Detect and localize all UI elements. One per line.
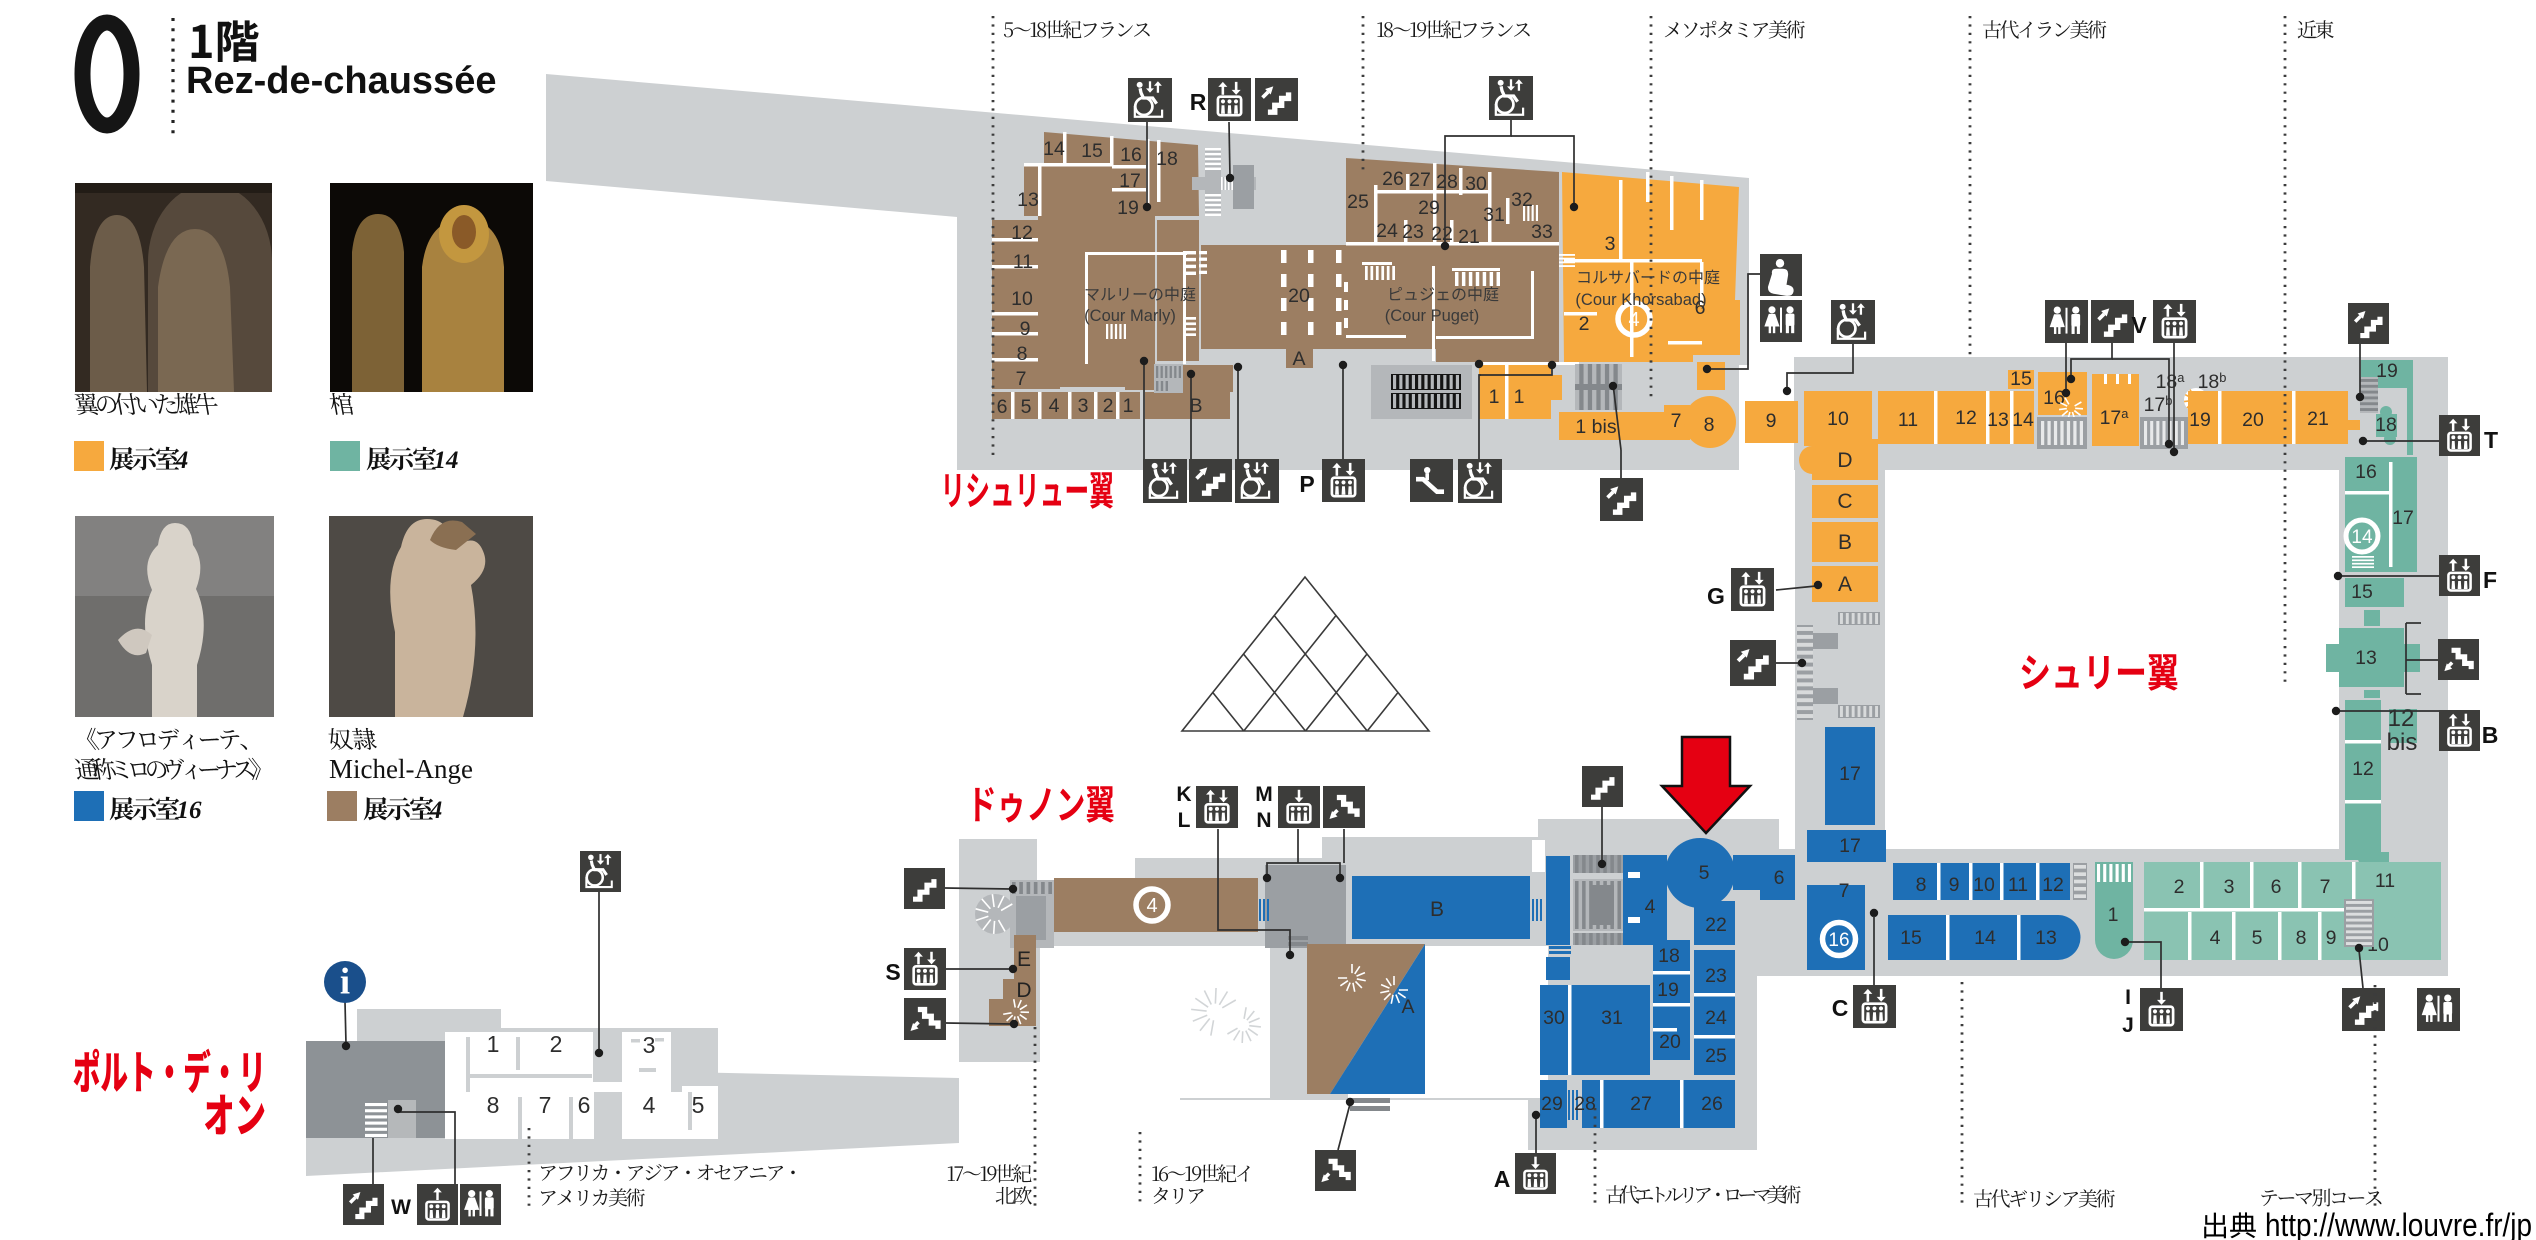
svg-text:27: 27 (1630, 1093, 1652, 1115)
svg-text:6: 6 (1774, 867, 1785, 889)
svg-text:Rez-de-chaussée: Rez-de-chaussée (186, 60, 496, 102)
svg-text:8: 8 (487, 1092, 500, 1118)
svg-text:2: 2 (2174, 876, 2185, 898)
svg-text:17: 17 (1119, 170, 1141, 192)
svg-text:15: 15 (1081, 140, 1103, 162)
svg-text:32: 32 (1511, 189, 1533, 211)
svg-text:1: 1 (1123, 395, 1134, 417)
svg-text:16: 16 (2043, 387, 2065, 409)
svg-text:http://www.louvre.fr/jp: http://www.louvre.fr/jp (2265, 1207, 2532, 1240)
svg-text:3: 3 (1605, 233, 1616, 255)
svg-text:18: 18 (1658, 945, 1680, 967)
svg-text:20: 20 (1288, 285, 1310, 307)
svg-text:7: 7 (2320, 876, 2331, 898)
svg-text:J: J (2122, 1014, 2134, 1037)
svg-text:4: 4 (1049, 395, 1060, 417)
svg-text:S: S (885, 959, 900, 985)
svg-text:11: 11 (2375, 870, 2395, 892)
svg-text:31: 31 (1601, 1007, 1623, 1029)
svg-text:14: 14 (1043, 138, 1065, 160)
svg-text:D: D (1016, 979, 1031, 1002)
svg-text:P: P (1299, 471, 1314, 497)
svg-text:25: 25 (1347, 191, 1369, 213)
svg-text:27: 27 (1409, 169, 1431, 191)
svg-text:14: 14 (2351, 527, 2373, 548)
svg-text:1 bis: 1 bis (1575, 416, 1616, 438)
svg-text:4: 4 (175, 447, 189, 474)
svg-text:N: N (1256, 809, 1271, 832)
svg-text:2: 2 (550, 1031, 563, 1057)
svg-text:12: 12 (2388, 705, 2415, 732)
svg-text:22: 22 (1705, 914, 1727, 936)
svg-text:19: 19 (1117, 197, 1139, 219)
svg-text:B: B (1430, 898, 1444, 921)
svg-text:5: 5 (692, 1092, 705, 1118)
svg-text:7: 7 (1839, 880, 1850, 902)
svg-text:12: 12 (2352, 758, 2374, 780)
svg-text:23: 23 (1705, 965, 1727, 987)
svg-text:1: 1 (2108, 904, 2119, 926)
svg-text:15: 15 (2351, 581, 2373, 603)
svg-text:4: 4 (643, 1092, 656, 1118)
svg-text:33: 33 (1531, 221, 1553, 243)
svg-text:9: 9 (1766, 410, 1777, 432)
svg-text:(Cour Marly): (Cour Marly) (1084, 307, 1176, 325)
svg-text:30: 30 (1465, 173, 1487, 195)
svg-text:11: 11 (2008, 874, 2028, 896)
svg-text:14: 14 (2012, 409, 2034, 431)
svg-text:14: 14 (434, 447, 459, 474)
svg-text:14: 14 (1974, 927, 1996, 949)
svg-text:1: 1 (1514, 386, 1525, 408)
svg-text:10: 10 (1011, 288, 1033, 310)
svg-text:4: 4 (1645, 896, 1656, 918)
svg-text:25: 25 (1705, 1045, 1727, 1067)
svg-text:17: 17 (1839, 763, 1861, 785)
svg-text:3: 3 (2224, 876, 2235, 898)
svg-text:A: A (1401, 996, 1414, 1018)
svg-text:12: 12 (1955, 407, 1977, 429)
svg-text:13: 13 (2355, 647, 2377, 669)
svg-text:9: 9 (1020, 318, 1031, 340)
svg-text:19: 19 (1657, 979, 1679, 1001)
svg-text:16: 16 (2355, 461, 2377, 483)
svg-text:V: V (2131, 312, 2147, 338)
svg-text:2: 2 (1579, 313, 1590, 335)
svg-text:17: 17 (2392, 507, 2414, 529)
svg-text:A: A (1494, 1166, 1511, 1192)
svg-text:A: A (1292, 348, 1305, 370)
svg-text:26: 26 (1701, 1093, 1723, 1115)
svg-text:29: 29 (1541, 1093, 1563, 1115)
svg-text:6: 6 (997, 396, 1008, 418)
svg-text:15: 15 (2010, 368, 2032, 390)
svg-text:9: 9 (1949, 874, 1960, 896)
svg-text:E: E (1017, 948, 1031, 971)
svg-text:18: 18 (1156, 148, 1178, 170)
svg-text:8: 8 (1916, 874, 1927, 896)
svg-text:6: 6 (578, 1092, 591, 1118)
svg-text:6: 6 (2271, 876, 2282, 898)
svg-text:G: G (1707, 583, 1725, 609)
svg-text:M: M (1255, 783, 1273, 806)
svg-text:9: 9 (2326, 927, 2337, 949)
svg-text:D: D (1837, 449, 1852, 472)
svg-text:C: C (1837, 490, 1852, 513)
svg-text:16: 16 (177, 797, 203, 824)
svg-text:(Cour Khorsabad): (Cour Khorsabad) (1575, 291, 1706, 309)
svg-text:21: 21 (2307, 408, 2329, 430)
svg-text:29: 29 (1418, 197, 1440, 219)
svg-text:17: 17 (1839, 835, 1861, 857)
svg-text:4: 4 (1146, 895, 1157, 917)
svg-text:3: 3 (643, 1032, 656, 1058)
svg-text:8: 8 (1017, 343, 1028, 365)
svg-text:bis: bis (2387, 729, 2418, 756)
svg-text:12: 12 (2042, 874, 2064, 896)
svg-text:1: 1 (1489, 386, 1500, 408)
svg-text:K: K (1176, 783, 1191, 806)
svg-text:22: 22 (1431, 223, 1453, 245)
svg-text:4: 4 (429, 797, 443, 824)
svg-text:(Cour Puget): (Cour Puget) (1385, 307, 1479, 325)
svg-text:31: 31 (1483, 204, 1505, 226)
svg-text:23: 23 (1402, 221, 1424, 243)
svg-text:5: 5 (1699, 862, 1710, 884)
svg-text:13: 13 (1987, 409, 2009, 431)
svg-text:11: 11 (1013, 251, 1033, 273)
svg-text:19: 19 (2189, 409, 2211, 431)
svg-text:26: 26 (1382, 168, 1404, 190)
svg-text:15: 15 (1900, 927, 1922, 949)
svg-text:7: 7 (1016, 368, 1027, 390)
svg-text:i: i (340, 961, 350, 1002)
svg-text:28: 28 (1436, 171, 1458, 193)
svg-text:21: 21 (1458, 226, 1480, 248)
svg-text:5: 5 (1021, 396, 1032, 418)
svg-text:L: L (1178, 809, 1191, 832)
svg-text:5: 5 (2252, 927, 2263, 949)
svg-text:10: 10 (1973, 874, 1995, 896)
svg-text:19: 19 (2376, 360, 2398, 382)
svg-text:A: A (1838, 573, 1852, 596)
svg-text:16: 16 (1828, 930, 1849, 951)
svg-text:Michel-Ange: Michel-Ange (329, 754, 473, 784)
svg-text:12: 12 (1011, 222, 1033, 244)
svg-text:11: 11 (1898, 409, 1918, 431)
svg-text:I: I (2125, 986, 2131, 1009)
svg-text:13: 13 (2035, 927, 2057, 949)
svg-text:8: 8 (2296, 927, 2307, 949)
svg-text:7: 7 (539, 1092, 552, 1118)
svg-text:24: 24 (1705, 1007, 1727, 1029)
svg-text:10: 10 (1827, 408, 1849, 430)
svg-text:W: W (391, 1196, 411, 1219)
svg-text:B: B (1838, 531, 1852, 554)
svg-text:T: T (2484, 427, 2498, 453)
svg-text:30: 30 (1543, 1007, 1565, 1029)
svg-text:8: 8 (1704, 414, 1715, 436)
svg-text:3: 3 (1078, 395, 1089, 417)
svg-text:R: R (1190, 89, 1207, 115)
svg-text:1: 1 (487, 1031, 500, 1057)
svg-text:7: 7 (1671, 410, 1682, 432)
svg-text:4: 4 (1628, 309, 1639, 331)
svg-text:B: B (2482, 722, 2499, 748)
svg-text:C: C (1832, 995, 1849, 1021)
svg-text:4: 4 (2210, 927, 2221, 949)
svg-text:16: 16 (1120, 144, 1142, 166)
svg-text:F: F (2483, 567, 2497, 593)
svg-text:28: 28 (1574, 1093, 1596, 1115)
svg-text:18: 18 (2375, 414, 2397, 436)
svg-text:20: 20 (1659, 1031, 1681, 1053)
svg-text:13: 13 (1017, 189, 1039, 211)
svg-text:24: 24 (1376, 220, 1398, 242)
svg-text:2: 2 (1103, 395, 1114, 417)
svg-text:20: 20 (2242, 409, 2264, 431)
